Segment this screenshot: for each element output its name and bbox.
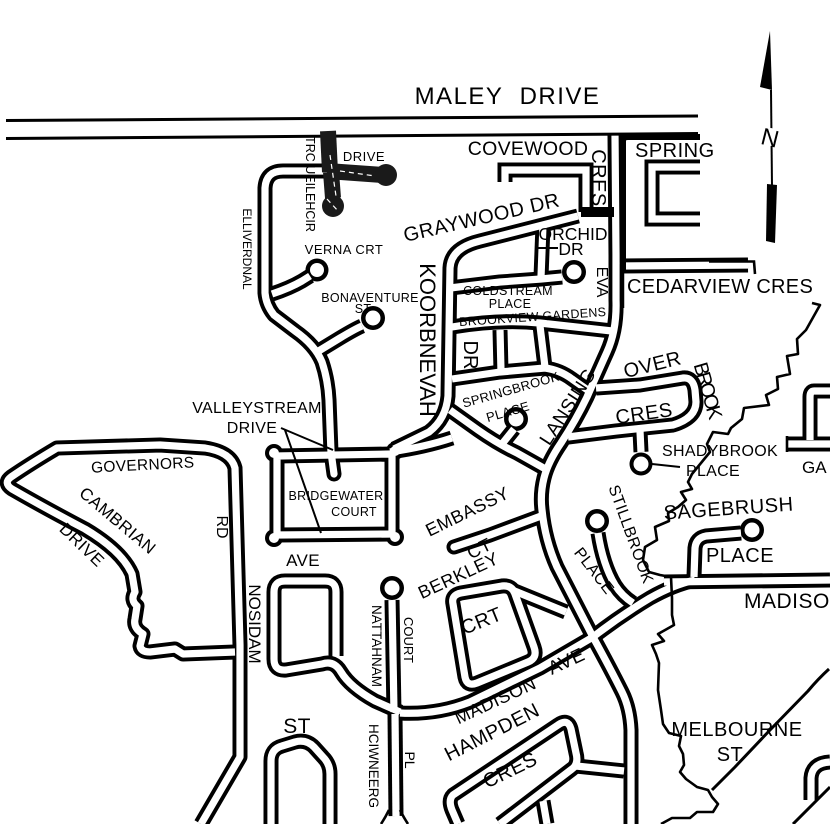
svg-text:ST: ST (717, 744, 744, 766)
svg-text:COURT: COURT (401, 617, 416, 663)
svg-text:KOORBNEVAH: KOORBNEVAH (415, 263, 440, 417)
svg-text:DRIVE: DRIVE (227, 420, 277, 437)
svg-text:MELBOURNE: MELBOURNE (671, 719, 802, 741)
svg-text:DRIVE: DRIVE (520, 83, 601, 110)
svg-text:PLACE: PLACE (489, 297, 532, 311)
svg-text:COURT: COURT (331, 505, 377, 519)
svg-text:PLACE: PLACE (706, 545, 774, 567)
svg-text:CEDARVIEW CRES: CEDARVIEW CRES (627, 276, 813, 298)
svg-text:ST: ST (283, 715, 310, 738)
svg-text:COLDSTREAM: COLDSTREAM (463, 284, 553, 298)
svg-text:GA: GA (802, 458, 827, 477)
svg-text:RD: RD (213, 515, 230, 538)
svg-text:VERNA CRT: VERNA CRT (305, 242, 384, 257)
svg-text:PLACE: PLACE (686, 463, 740, 480)
svg-text:CRES: CRES (587, 149, 609, 207)
svg-text:ELLIVERDNAL: ELLIVERDNAL (240, 208, 254, 290)
svg-text:VALLEYSTREAM: VALLEYSTREAM (192, 400, 322, 417)
svg-text:COVEWOOD: COVEWOOD (468, 138, 589, 160)
svg-text:SPRING: SPRING (635, 140, 715, 162)
svg-text:DR: DR (558, 239, 583, 259)
svg-text:NATTAHNAM: NATTAHNAM (369, 605, 384, 687)
svg-text:TRC UEILEHCIR: TRC UEILEHCIR (303, 136, 317, 232)
svg-text:NOSIDAM: NOSIDAM (245, 584, 264, 663)
svg-text:ST: ST (355, 302, 372, 316)
svg-text:DRIVE: DRIVE (343, 149, 385, 164)
svg-text:EVA: EVA (593, 267, 610, 298)
svg-text:AVE: AVE (286, 551, 320, 570)
svg-text:MALEY: MALEY (415, 83, 504, 110)
svg-text:PL: PL (402, 751, 418, 768)
svg-text:DR: DR (459, 341, 481, 370)
svg-text:BRIDGEWATER: BRIDGEWATER (289, 489, 384, 503)
svg-text:MADISON: MADISON (744, 590, 830, 613)
svg-text:SHADYBROOK: SHADYBROOK (662, 443, 778, 460)
svg-text:HCIWNEERG: HCIWNEERG (366, 724, 381, 808)
